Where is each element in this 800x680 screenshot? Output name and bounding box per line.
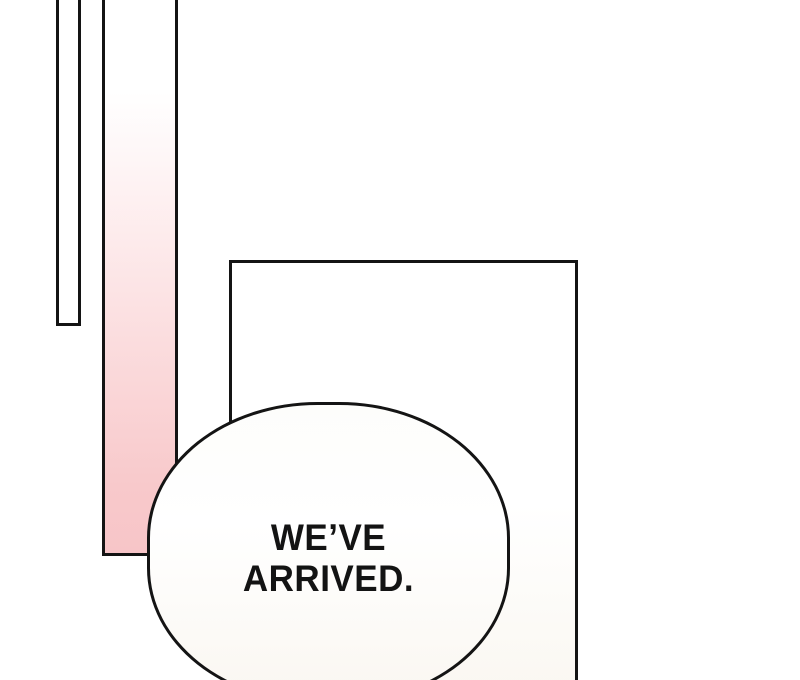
dialogue-line-2: ARRIVED.: [243, 558, 414, 599]
background-bar-outline: [56, 0, 81, 326]
speech-bubble-text: WE’VE ARRIVED.: [243, 507, 414, 599]
speech-bubble: WE’VE ARRIVED.: [147, 402, 510, 680]
comic-panel: WE’VE ARRIVED.: [0, 0, 800, 680]
dialogue-line-1: WE’VE: [243, 517, 414, 558]
